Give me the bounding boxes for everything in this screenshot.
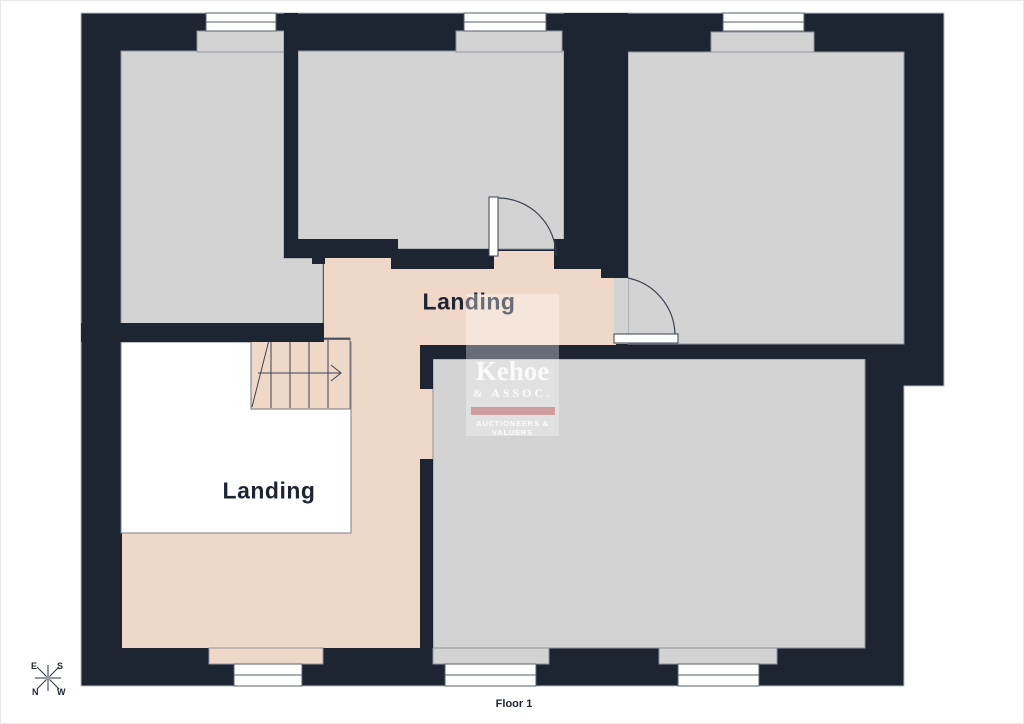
wall-above-white-room [81, 323, 324, 342]
bay-bottom-left [209, 648, 323, 664]
compass-center [46, 676, 50, 680]
compass-east: E [31, 661, 37, 671]
floorplan-canvas: E S N W Landing Landing Floor 1 Kehoe & … [0, 0, 1024, 724]
room-top-middle [298, 51, 564, 249]
bay-top-right [711, 32, 814, 52]
wall-bottom-room-left-stub [420, 359, 433, 389]
bay-bottom-right [659, 648, 777, 664]
agency-logo-bar [471, 407, 555, 415]
door-leaf [614, 334, 678, 343]
wall-landing-top-left [284, 239, 398, 258]
wall-landing-top-mid [391, 249, 494, 269]
agency-watermark: Kehoe & ASSOC. AUCTIONEERS & VALUERS [466, 294, 559, 436]
wall-top-middle-right [554, 13, 628, 278]
compass-rose: E S N W [31, 661, 66, 697]
agency-tagline: AUCTIONEERS & VALUERS [466, 419, 559, 437]
door-leaf [489, 197, 498, 256]
compass-west: W [57, 687, 66, 697]
label-floor: Floor 1 [496, 698, 533, 710]
staircase [251, 338, 350, 409]
bay-top-middle [456, 31, 562, 52]
wall-stub [312, 258, 325, 264]
room-top-right [628, 52, 904, 344]
agency-name: Kehoe [466, 358, 559, 384]
bay-top-left [197, 31, 284, 52]
label-landing-lower: Landing [223, 478, 316, 505]
wall-bottom-room-left [420, 459, 433, 648]
bay-bottom-middle [433, 648, 549, 664]
wall-between-top-rooms [284, 13, 298, 245]
compass-south: S [57, 661, 63, 671]
agency-assoc: & ASSOC. [466, 386, 559, 401]
compass-north: N [32, 687, 39, 697]
